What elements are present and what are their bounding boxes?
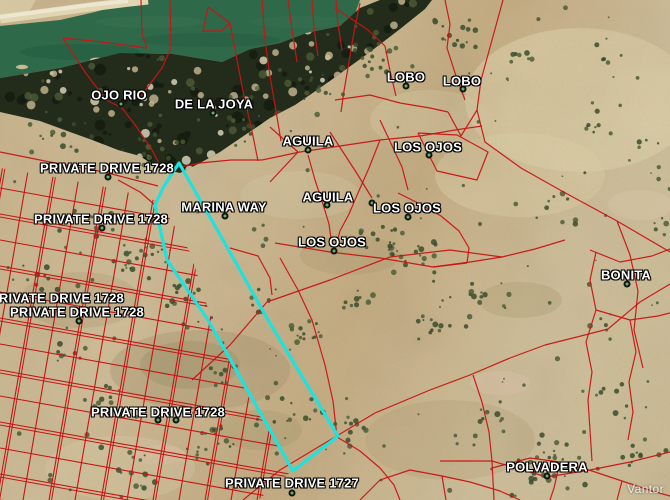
- parcel-marker-dot[interactable]: [403, 83, 410, 90]
- parcel-marker-dot[interactable]: [624, 281, 631, 288]
- map-canvas[interactable]: OJO RIODE LA JOYALOBOLOBOAGUILALOS OJOSA…: [0, 0, 670, 500]
- parcel-marker-dot[interactable]: [460, 86, 467, 93]
- imagery-watermark: Vantor: [627, 482, 664, 496]
- parcel-marker-dot[interactable]: [369, 200, 376, 207]
- parcel-marker-dot[interactable]: [155, 417, 162, 424]
- parcel-marker-dot[interactable]: [289, 490, 296, 497]
- parcel-marker-dot[interactable]: [426, 152, 433, 159]
- parcel-marker-dot[interactable]: [118, 101, 125, 108]
- parcel-marker-dot[interactable]: [210, 110, 217, 117]
- parcel-marker-dot[interactable]: [76, 318, 83, 325]
- parcel-marker-dot[interactable]: [173, 417, 180, 424]
- parcel-marker-dot[interactable]: [305, 147, 312, 154]
- parcel-marker-dot[interactable]: [222, 213, 229, 220]
- parcel-marker-dot[interactable]: [405, 214, 412, 221]
- parcel-marker-dot[interactable]: [331, 248, 338, 255]
- parcel-marker-dot[interactable]: [99, 225, 106, 232]
- parcel-marker-dot[interactable]: [105, 174, 112, 181]
- parcel-marker-dot[interactable]: [324, 202, 331, 209]
- parcel-marker-dot[interactable]: [544, 473, 551, 480]
